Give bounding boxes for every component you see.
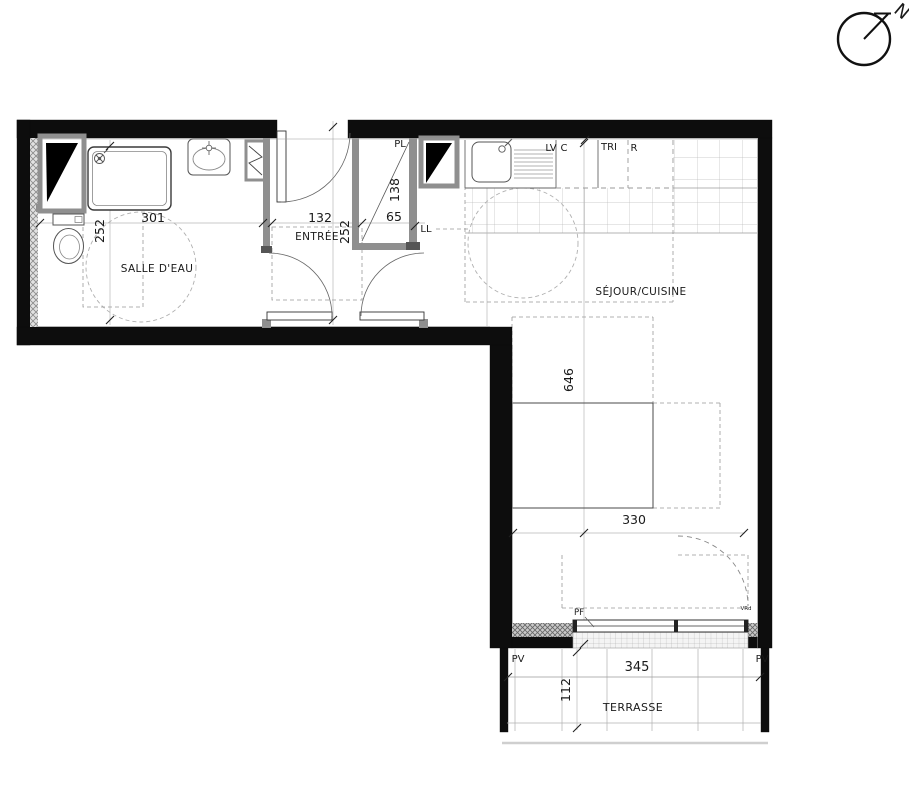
kitchen-counter	[465, 139, 673, 188]
technical-shaft-kitchen	[421, 138, 457, 186]
dim-closet-width: 65	[386, 209, 402, 224]
technical-shaft-bathroom	[40, 136, 84, 211]
dim-entry-height: 252	[337, 220, 352, 244]
room-label-entry: ENTRÉE	[295, 230, 339, 243]
terrace-door-swing	[678, 536, 748, 606]
furniture-zone-right	[653, 403, 720, 508]
dim-living-height: 646	[561, 368, 576, 392]
label-roller-shutter: VRd	[740, 606, 751, 612]
dim-terrace-width: 345	[625, 660, 650, 675]
room-label-closet: PL	[394, 139, 406, 150]
label-pv-right: PV	[756, 654, 769, 665]
kitchen-sink	[472, 139, 512, 182]
label-dishwasher: LV	[545, 143, 556, 154]
shower	[88, 147, 171, 210]
dim-bathroom-width: 301	[141, 210, 165, 225]
label-french-door: PF	[574, 608, 584, 618]
wall-hatch-right	[748, 623, 758, 637]
label-washing-machine: LL	[420, 224, 432, 235]
window-sill	[573, 632, 748, 648]
label-pv-left: PV	[512, 654, 525, 665]
floor-plan-drawing: SALLE D'EAU ENTRÉE SÉJOUR/CUISINE TERRAS…	[0, 0, 909, 800]
wall-hatch-left	[512, 623, 573, 637]
french-window	[573, 620, 748, 648]
bathroom-door	[267, 253, 332, 320]
furniture-zone-upper	[512, 317, 653, 403]
label-fridge: R	[631, 143, 638, 154]
room-label-terrace: TERRASSE	[602, 701, 663, 714]
dim-living-width: 330	[622, 512, 646, 527]
floor-plan: SALLE D'EAU ENTRÉE SÉJOUR/CUISINE TERRAS…	[0, 0, 909, 800]
toilet	[53, 214, 84, 264]
dim-bathroom-height: 252	[92, 219, 107, 243]
furniture-outline	[512, 403, 653, 508]
living-room-door	[360, 253, 424, 320]
drainboard	[514, 150, 553, 178]
label-cooktop: C	[561, 143, 568, 154]
dashed-zones	[83, 188, 748, 608]
terrace-wall-left	[500, 648, 508, 732]
dim-terrace-depth: 112	[558, 678, 573, 702]
washbasin	[188, 139, 230, 175]
north-label: N	[890, 0, 909, 24]
room-label-living: SÉJOUR/CUISINE	[595, 285, 686, 298]
entrance-door	[277, 131, 350, 202]
dim-closet-depth: 138	[387, 178, 402, 202]
north-compass-icon: N	[838, 0, 909, 65]
room-label-bathroom: SALLE D'EAU	[121, 263, 194, 275]
label-waste-sorting: TRI	[600, 142, 617, 153]
dim-entry-width: 132	[308, 210, 332, 225]
wall-lining-hatch	[30, 138, 38, 327]
window-door-zone	[562, 555, 748, 608]
